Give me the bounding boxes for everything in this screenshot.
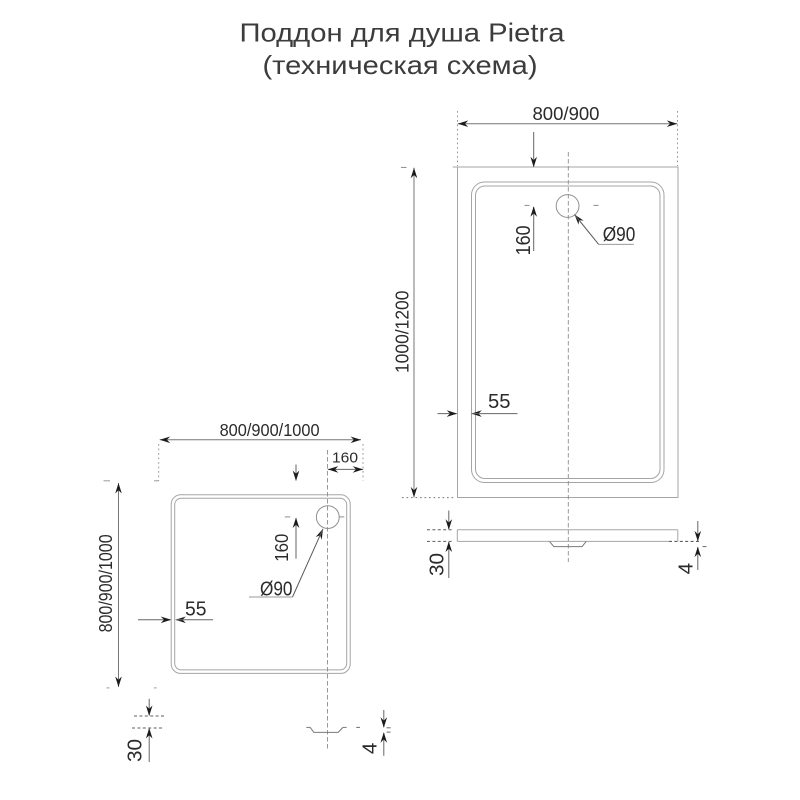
svg-text:1000/1200: 1000/1200 — [392, 291, 413, 374]
svg-text:4: 4 — [675, 563, 698, 575]
svg-text:160: 160 — [512, 225, 535, 255]
svg-text:800/900/1000: 800/900/1000 — [220, 420, 320, 440]
svg-text:30: 30 — [426, 553, 449, 576]
svg-text:160: 160 — [332, 450, 358, 467]
svg-text:(техническая схема): (техническая схема) — [263, 50, 538, 80]
svg-text:30: 30 — [124, 739, 147, 762]
svg-text:55: 55 — [185, 598, 207, 621]
svg-text:Ø90: Ø90 — [260, 579, 293, 601]
svg-text:800/900: 800/900 — [533, 103, 600, 124]
svg-text:800/900/1000: 800/900/1000 — [96, 534, 116, 632]
svg-text:4: 4 — [359, 743, 382, 755]
svg-text:Ø90: Ø90 — [603, 224, 636, 246]
svg-text:160: 160 — [272, 534, 292, 562]
svg-text:55: 55 — [488, 390, 511, 413]
svg-text:Поддон для душа Pietra: Поддон для душа Pietra — [240, 18, 566, 48]
